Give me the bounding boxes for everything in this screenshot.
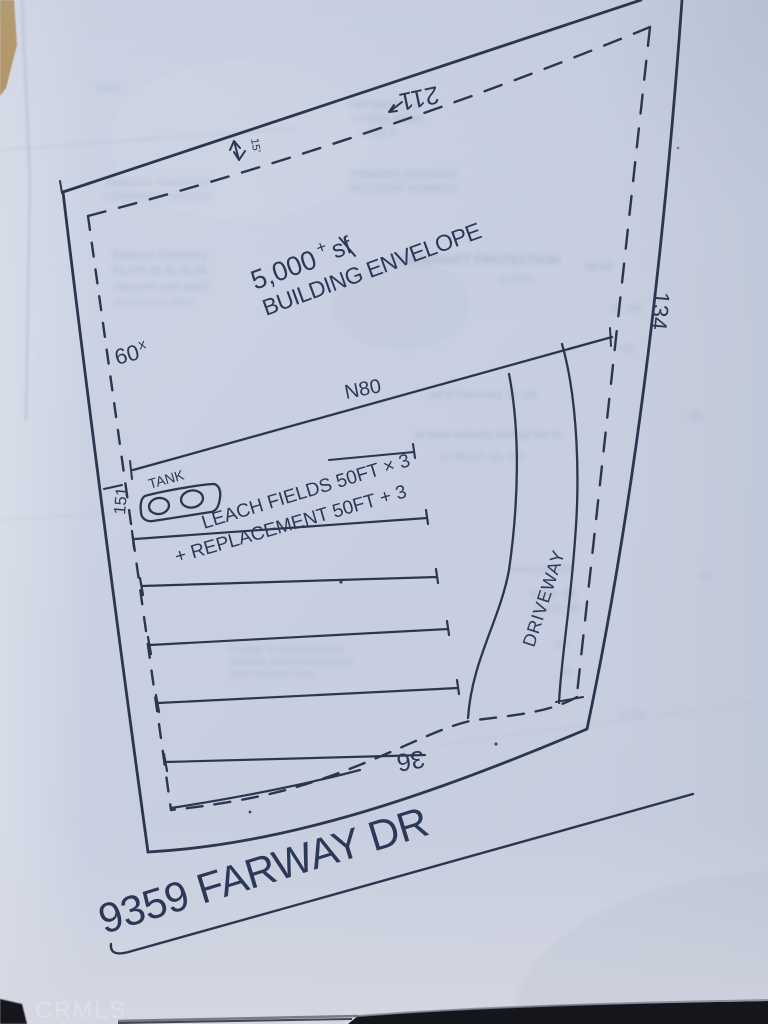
svg-text:ACCOUNT NUMBER: ACCOUNT NUMBER	[350, 183, 456, 195]
svg-text:of March 10, 202: of March 10, 202	[440, 451, 526, 463]
svg-text:151: 151	[111, 486, 131, 515]
svg-text:30: 30	[700, 571, 712, 583]
svg-text:ANNUAL PERCENTAGE data: ANNUAL PERCENTAGE data	[230, 657, 354, 667]
svg-text:In order to and Calculation: In order to and Calculation	[230, 644, 344, 654]
svg-text:(Loan): (Loan)	[500, 273, 534, 285]
svg-text:36: 36	[395, 744, 427, 776]
svg-text:15': 15'	[248, 137, 262, 153]
svg-text:CRMLS: CRMLS	[35, 997, 127, 1024]
svg-text:to loan activity during the fi: to loan activity during the fil	[415, 429, 562, 441]
svg-text:4045: 4045	[96, 83, 120, 95]
svg-text:134: 134	[646, 291, 675, 332]
svg-text:deposits and addit: deposits and addit	[112, 281, 210, 293]
svg-text:99: 99	[690, 411, 702, 423]
svg-text:ed if February 16, 20: ed if February 16, 20	[430, 389, 536, 401]
svg-text:40: 40	[620, 343, 632, 355]
svg-text:PRIMARY ACCOUNT: PRIMARY ACCOUNT	[350, 169, 458, 181]
svg-text:86,98: 86,98	[585, 261, 613, 273]
svg-text:30 .00: 30 .00	[610, 303, 641, 315]
svg-text:checks and other: checks and other	[112, 297, 194, 308]
svg-text:Balance Summary: Balance Summary	[112, 249, 208, 261]
svg-text:TO BOX NUMB: TO BOX NUMB	[352, 114, 423, 125]
svg-text:while balances data: while balances data	[229, 669, 316, 679]
svg-text:92,070 20 31 11,34: 92,070 20 31 11,34	[112, 265, 207, 277]
